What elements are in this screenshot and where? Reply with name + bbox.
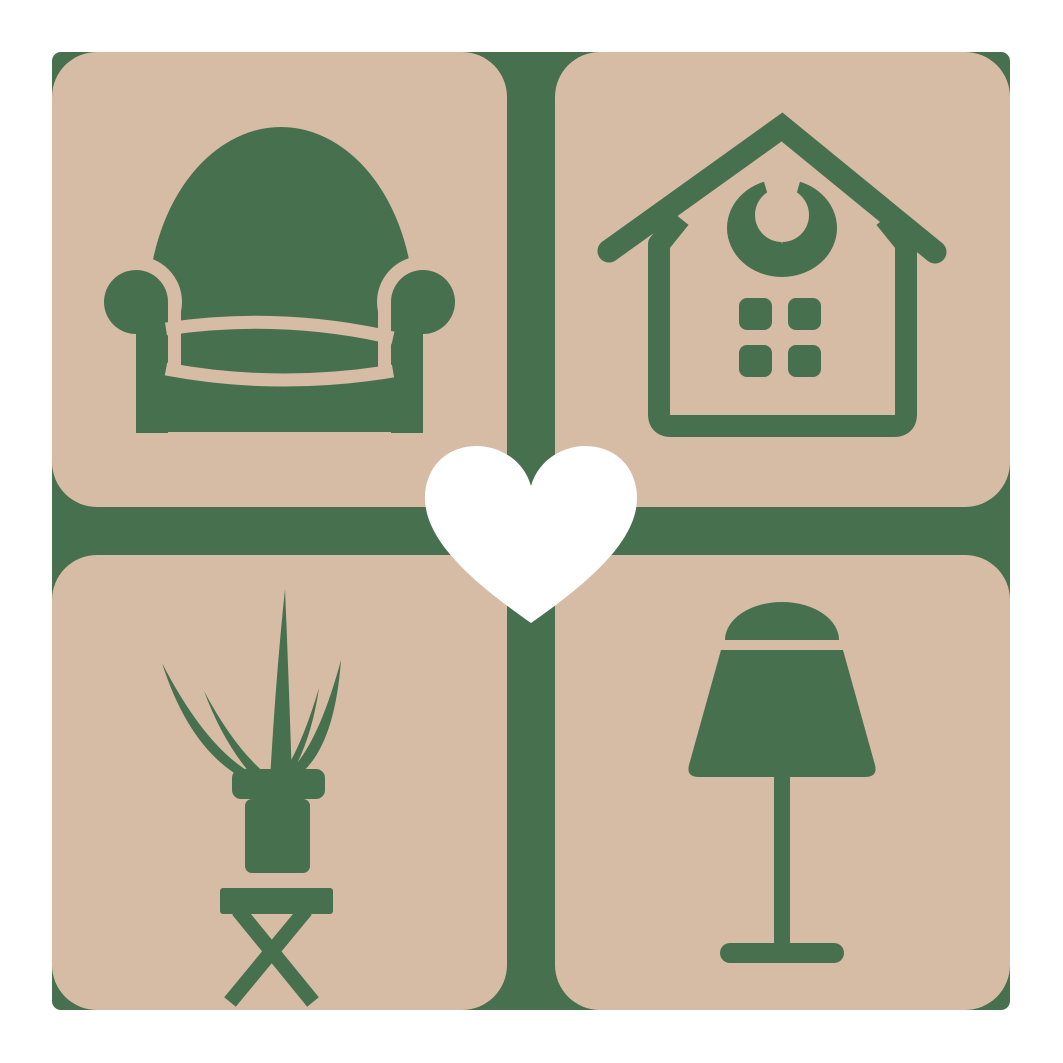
tile-plant (52, 555, 507, 1010)
plant-pot-rim (232, 769, 325, 799)
lamp-base (720, 943, 844, 963)
plant-stool-top (220, 888, 333, 914)
lamp-shade (688, 650, 875, 777)
tile-armchair (52, 52, 507, 507)
tile-house (555, 52, 1010, 507)
tile-lamp (555, 555, 1010, 1010)
logo-stage (0, 0, 1063, 1063)
home-furniture-logo (0, 0, 1063, 1063)
plant-pot (245, 799, 310, 873)
lamp-stem (774, 777, 790, 947)
